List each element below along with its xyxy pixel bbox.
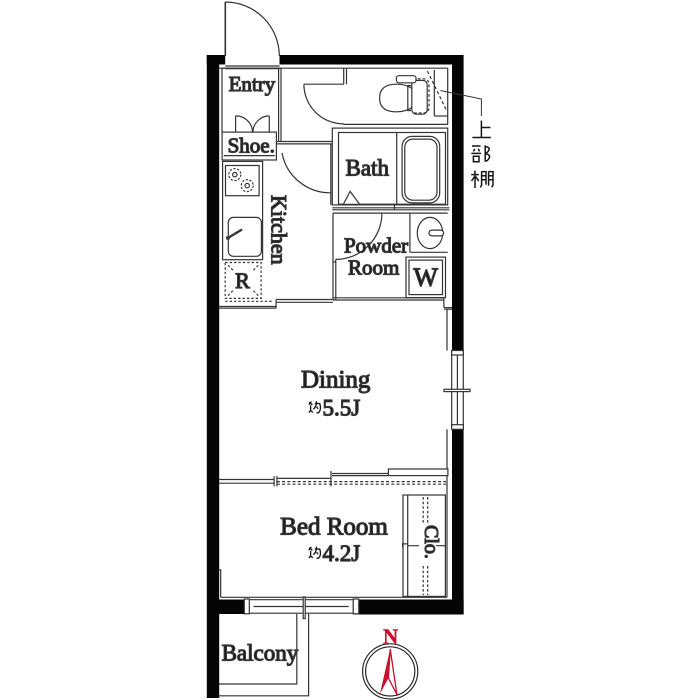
svg-text:Shoe.: Shoe.	[228, 134, 275, 158]
svg-text:W: W	[413, 263, 438, 292]
svg-text:Kitchen: Kitchen	[267, 195, 292, 265]
svg-text:N: N	[383, 625, 398, 649]
svg-text:Clo.: Clo.	[420, 525, 442, 559]
svg-text:R: R	[235, 268, 250, 293]
svg-text:5.5J: 5.5J	[323, 395, 361, 420]
svg-text:Bath: Bath	[346, 155, 390, 180]
svg-text:4.2J: 4.2J	[323, 541, 361, 566]
svg-text:Dining: Dining	[301, 366, 371, 393]
svg-text:Bed Room: Bed Room	[280, 514, 388, 541]
svg-text:Room: Room	[348, 255, 399, 279]
svg-text:Powder: Powder	[344, 233, 408, 257]
svg-text:Entry: Entry	[229, 72, 276, 96]
svg-text:Balcony: Balcony	[222, 641, 299, 666]
